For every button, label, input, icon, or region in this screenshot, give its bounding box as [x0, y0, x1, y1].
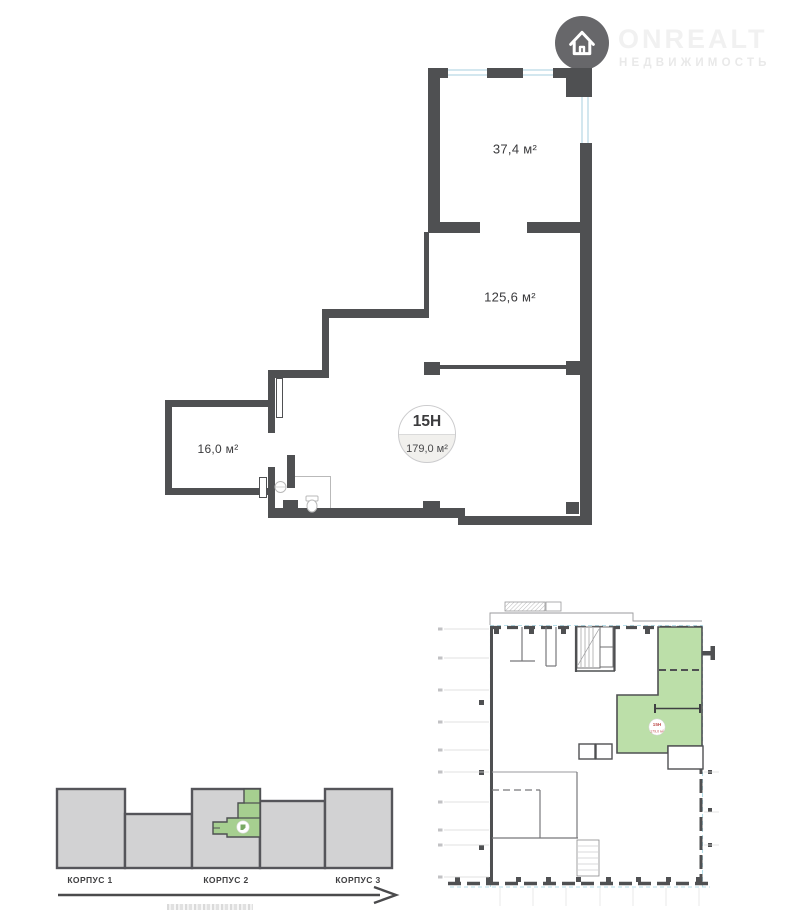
strip-block[interactable]	[125, 814, 192, 868]
window-line	[523, 69, 553, 71]
column-pier	[566, 502, 579, 514]
wall-segment	[322, 309, 429, 318]
wall-segment	[580, 143, 592, 525]
key-plan: 15Н 179,0 м²	[433, 595, 723, 910]
unit-area: 179,0 м²	[399, 435, 455, 462]
wall-segment	[268, 370, 328, 378]
room-area-label: 125,6 м²	[484, 290, 536, 305]
window-line	[448, 69, 487, 71]
wall-segment	[428, 68, 440, 232]
partition-line	[440, 365, 566, 369]
door-leaf	[276, 378, 283, 418]
wall-segment	[165, 400, 275, 407]
door-leaf	[259, 477, 267, 498]
house-icon	[565, 26, 599, 60]
partition-pier	[566, 361, 592, 375]
strip-block-korpus3[interactable]	[325, 789, 392, 868]
keyplan-unit-area: 179,0 м²	[650, 730, 664, 734]
wall-segment	[165, 400, 172, 495]
window-line	[587, 97, 589, 143]
room-area-label: 37,4 м²	[493, 142, 537, 157]
wall-segment	[424, 232, 429, 312]
wall-segment	[464, 516, 592, 525]
window-line	[581, 97, 583, 143]
keyplan-unit-number: 15Н	[653, 722, 662, 727]
wall-segment	[566, 76, 592, 97]
window-line	[523, 74, 553, 76]
keyplan-unit-highlight[interactable]: 15Н 179,0 м²	[617, 627, 703, 769]
partition-pier	[424, 362, 440, 375]
elevator-shaft	[600, 647, 613, 667]
room-area-label: 16,0 м²	[197, 442, 238, 456]
toilet-icon	[306, 496, 318, 512]
wall-segment	[428, 222, 480, 233]
unit-badge: 15Н 179,0 м²	[398, 405, 456, 463]
bathroom-fixtures	[270, 470, 340, 520]
strip-block[interactable]	[260, 801, 325, 868]
keyplan-unit-notch	[668, 746, 703, 769]
logo-subtitle-text: НЕДВИЖИМОСТЬ	[619, 57, 771, 69]
unit-number: 15Н	[399, 406, 455, 435]
floorplan-page: ONREALT НЕДВИЖИМОСТЬ	[0, 0, 804, 910]
keyplan-interior	[492, 627, 615, 876]
keyplan-canopy	[490, 602, 702, 625]
wall-segment	[487, 68, 523, 78]
elevator-shaft	[600, 627, 613, 647]
wall-segment	[322, 309, 329, 378]
cut-off-caption	[167, 904, 253, 910]
window-line	[448, 74, 487, 76]
column-pier	[423, 501, 440, 510]
strip-block-korpus1[interactable]	[57, 789, 125, 868]
logo-brand-text: ONREALT	[618, 24, 768, 55]
logo-house-icon	[555, 16, 609, 70]
